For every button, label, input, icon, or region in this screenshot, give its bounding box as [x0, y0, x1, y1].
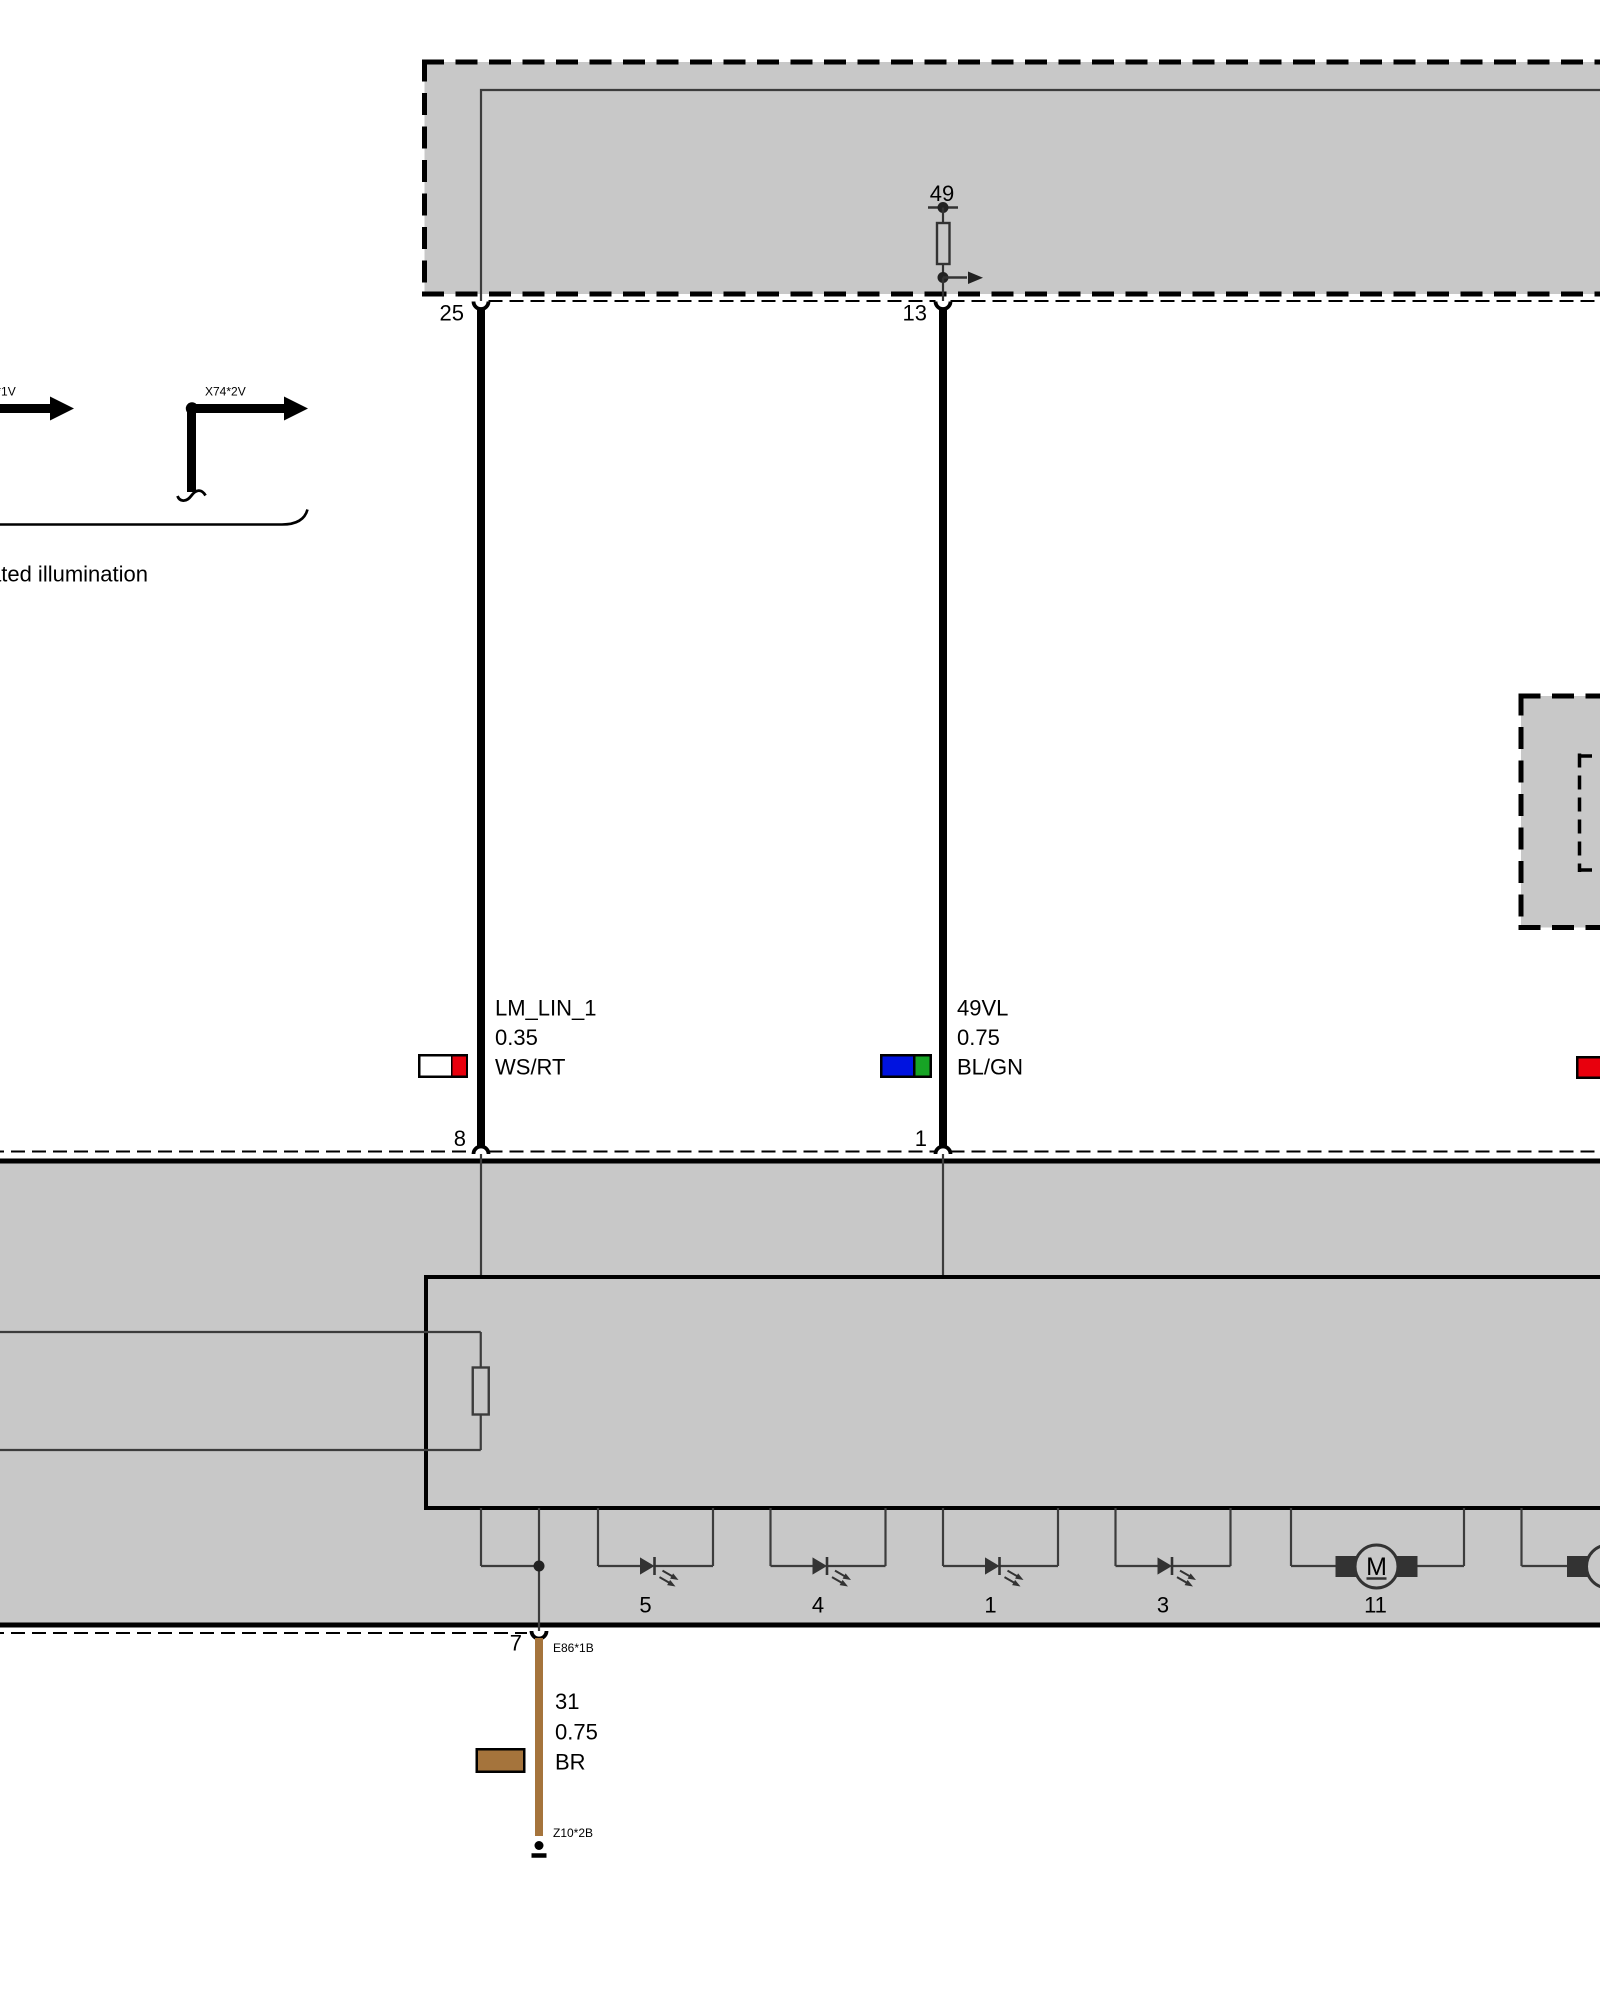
- svg-text:49VL: 49VL: [957, 996, 1008, 1021]
- svg-text:BR: BR: [555, 1750, 586, 1775]
- svg-text:E86*1B: E86*1B: [553, 1641, 594, 1655]
- svg-text:1: 1: [984, 1593, 996, 1618]
- svg-text:7: 7: [510, 1631, 522, 1656]
- svg-text:LM_LIN_1: LM_LIN_1: [495, 996, 597, 1021]
- svg-text:0.75: 0.75: [555, 1720, 598, 1745]
- svg-text:8: 8: [454, 1126, 466, 1151]
- svg-text:0.35: 0.35: [495, 1025, 538, 1050]
- svg-text:ated illumination: ated illumination: [0, 562, 148, 587]
- svg-text:3: 3: [1157, 1593, 1169, 1618]
- svg-text:M: M: [1366, 1553, 1387, 1581]
- svg-text:13: 13: [903, 301, 927, 326]
- svg-text:31: 31: [555, 1689, 579, 1714]
- svg-text:4: 4: [812, 1593, 824, 1618]
- svg-text:25: 25: [440, 301, 464, 326]
- svg-text:WS/RT: WS/RT: [495, 1055, 565, 1080]
- svg-text:X74*1V: X74*1V: [0, 385, 16, 399]
- svg-text:1: 1: [915, 1126, 927, 1151]
- svg-text:BL/GN: BL/GN: [957, 1055, 1023, 1080]
- svg-text:Z10*2B: Z10*2B: [553, 1826, 593, 1840]
- svg-text:X74*2V: X74*2V: [205, 385, 246, 399]
- svg-text:11: 11: [1364, 1593, 1387, 1618]
- svg-text:0.75: 0.75: [957, 1025, 1000, 1050]
- svg-text:5: 5: [639, 1593, 651, 1618]
